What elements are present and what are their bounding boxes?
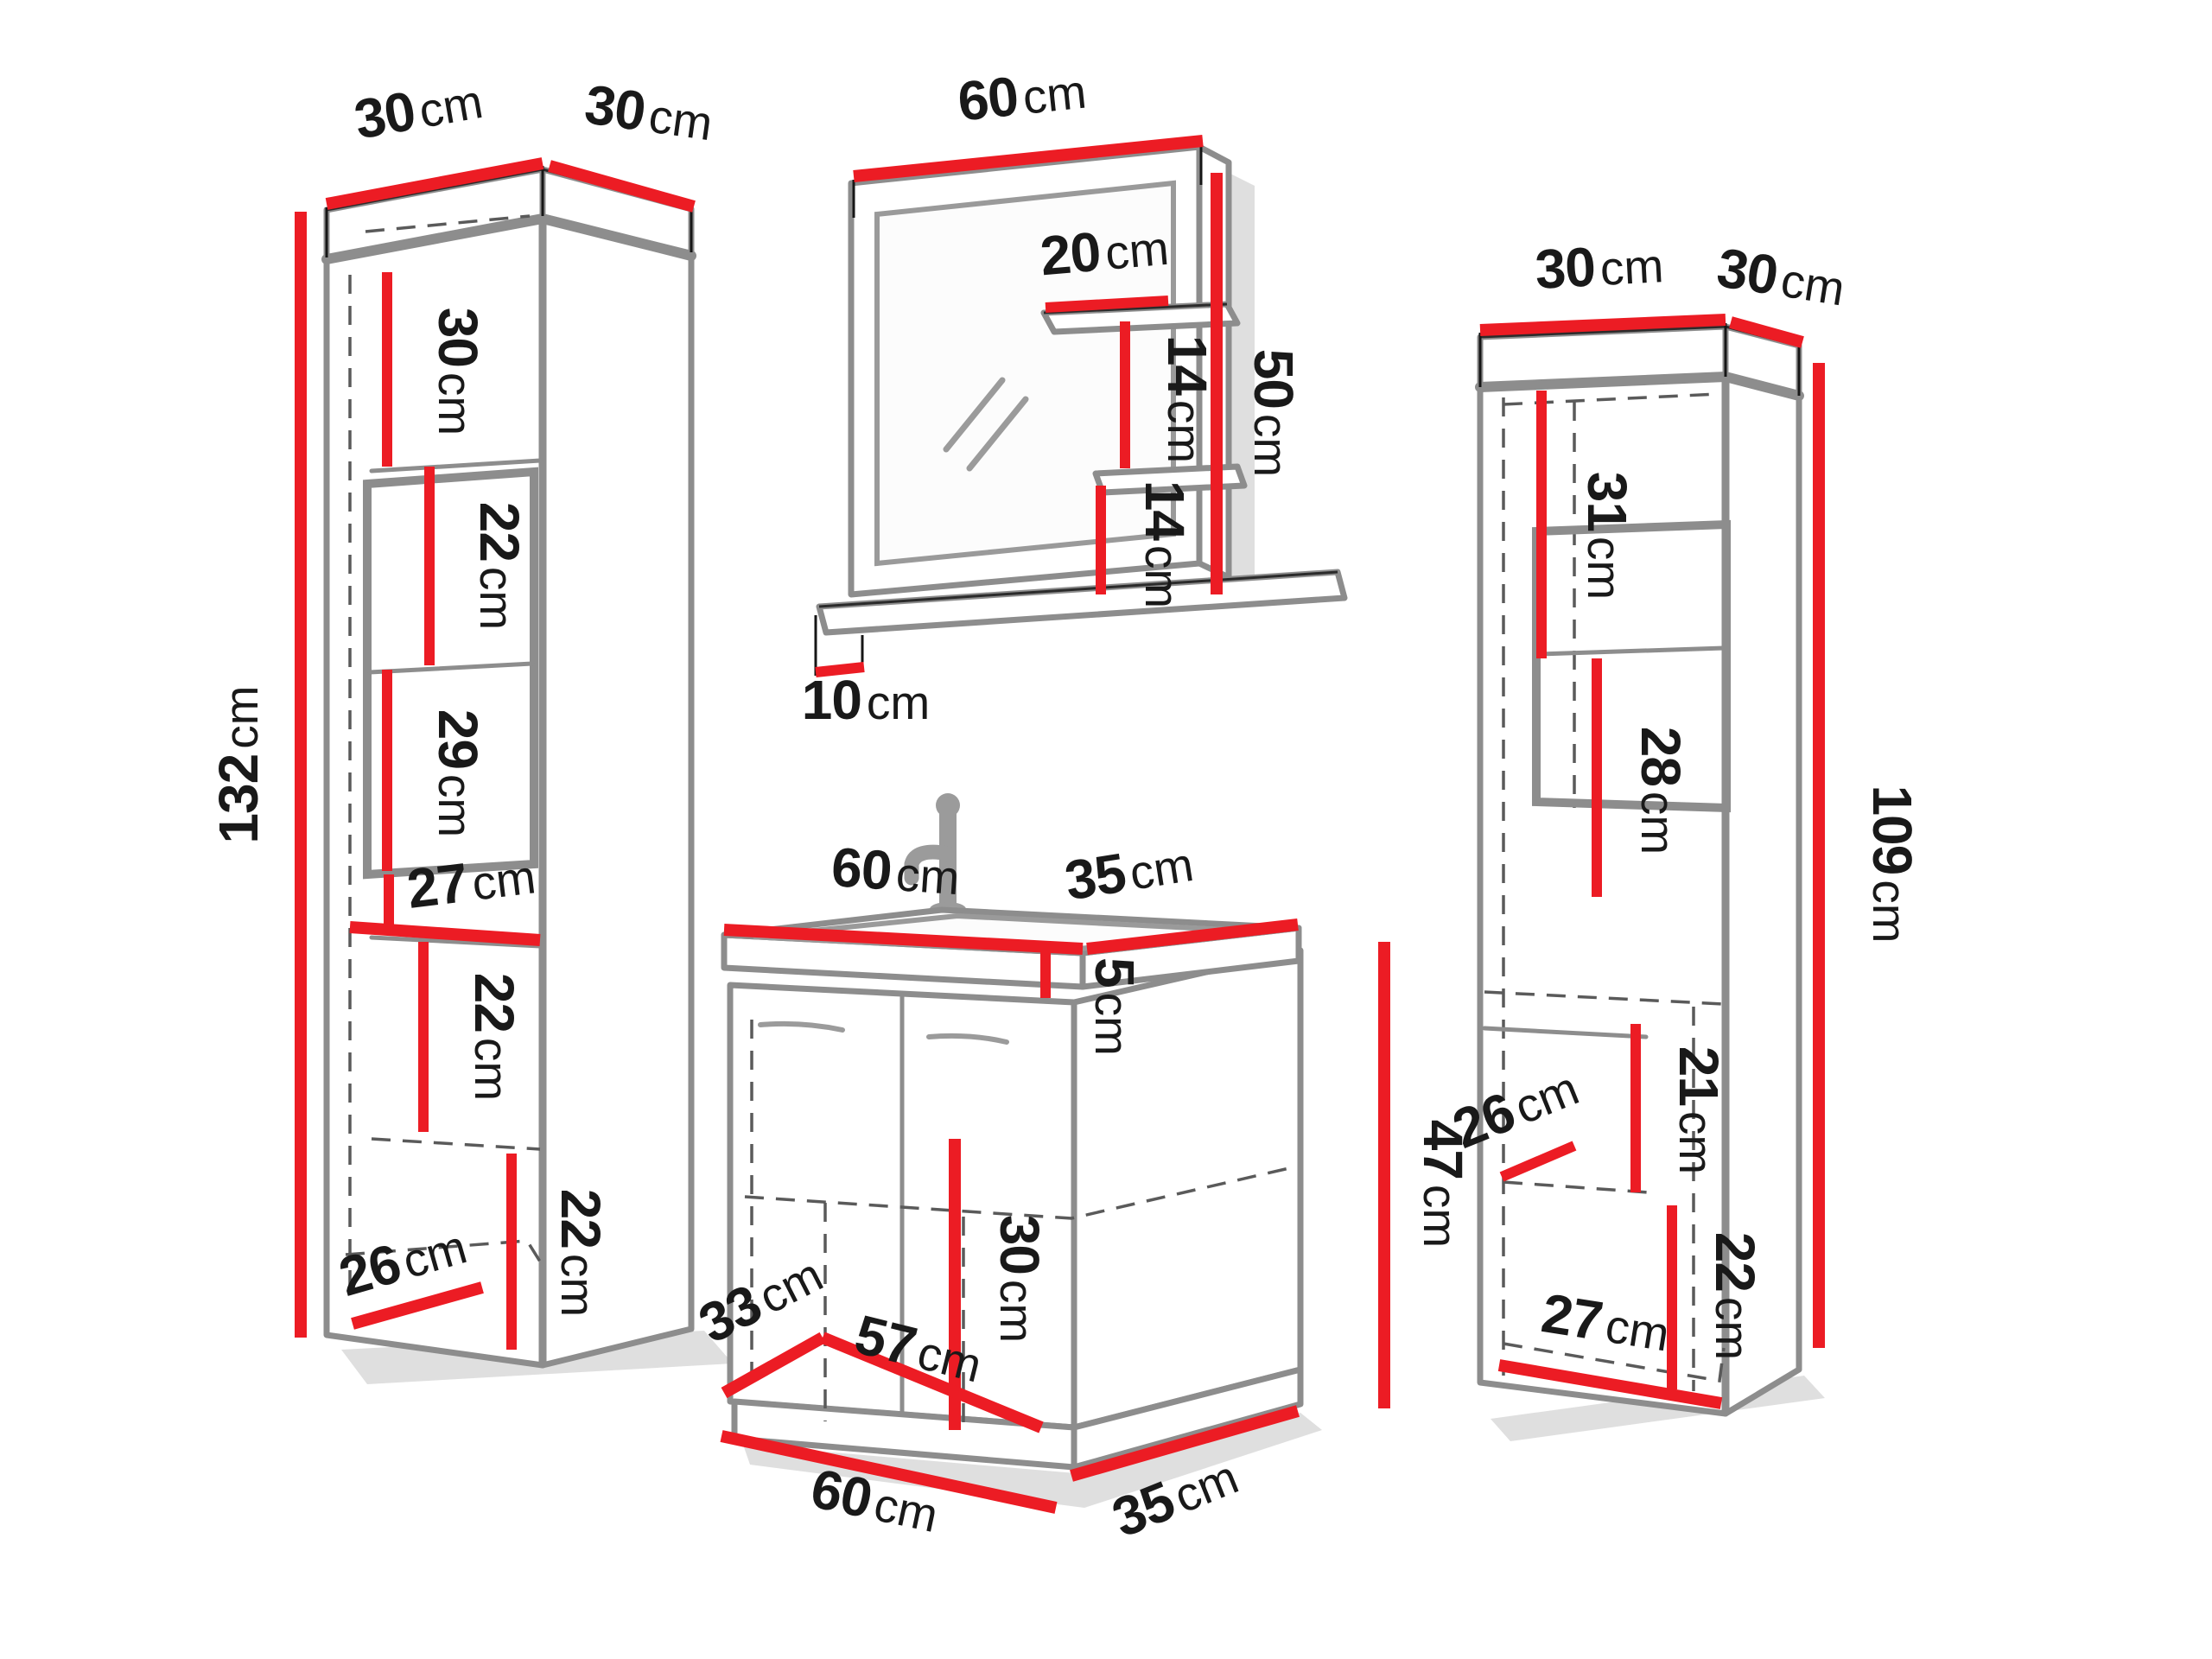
mirror-gap-bottom-label: 14cm (1134, 480, 1196, 609)
left-cabinet-height-label: 132cm (207, 685, 270, 843)
right-cabinet-shelf3-label: 21cm (1668, 1046, 1730, 1175)
mirror-height-label: 50cm (1243, 349, 1305, 478)
mirror-gap-top-label: 14cm (1156, 335, 1218, 464)
mirror-unit: 60cm 50cm 20cm 14cm 14cm 10cm (802, 58, 1344, 731)
mirror-shelf-width-line (1046, 301, 1168, 308)
sink-basin-height-label: 5cm (1084, 957, 1146, 1056)
left-cabinet-shelf3-label: 29cm (427, 709, 489, 838)
dimension-diagram: 30cm 30cm 132cm 30cm 22cm 29cm 27cm 22cm… (0, 0, 2212, 1659)
left-tall-cabinet: 30cm 30cm 132cm 30cm 22cm 29cm 27cm 22cm… (207, 67, 733, 1384)
left-cabinet-side-face (543, 169, 691, 1365)
left-cabinet-shelf2-label: 22cm (468, 502, 531, 631)
right-cabinet-shelf1-label: 31cm (1576, 472, 1638, 601)
right-cabinet-depth-label: 30cm (1713, 236, 1849, 317)
right-cabinet-shelf4-label: 22cm (1704, 1232, 1766, 1361)
right-tall-cabinet: 30cm 30cm 109cm 31cm 28cm 26cm 21cm 22cm… (1444, 232, 1923, 1441)
left-cabinet-shelf5-label: 22cm (463, 973, 525, 1102)
mirror-ledge-depth-label: 10cm (802, 669, 931, 731)
right-cabinet-width-label: 30cm (1534, 232, 1665, 301)
right-cabinet-height-label: 109cm (1861, 785, 1923, 943)
right-cabinet-niche-height-label: 28cm (1630, 727, 1692, 855)
left-cabinet-width-label: 30cm (350, 67, 487, 151)
left-cabinet-depth-label: 30cm (582, 73, 717, 152)
sink-cabinet: 60cm 35cm 5cm 47cm 30cm 33cm 57cm 60cm 3… (690, 793, 1474, 1549)
diagram-svg: 30cm 30cm 132cm 30cm 22cm 29cm 27cm 22cm… (0, 0, 2212, 1659)
mirror-width-label: 60cm (955, 58, 1089, 133)
left-cabinet-shelf1-label: 30cm (427, 308, 489, 436)
sink-door-span-label: 30cm (988, 1215, 1051, 1344)
sink-top-depth-label: 35cm (1061, 830, 1198, 912)
left-cabinet-shelf6-label: 22cm (550, 1189, 612, 1318)
